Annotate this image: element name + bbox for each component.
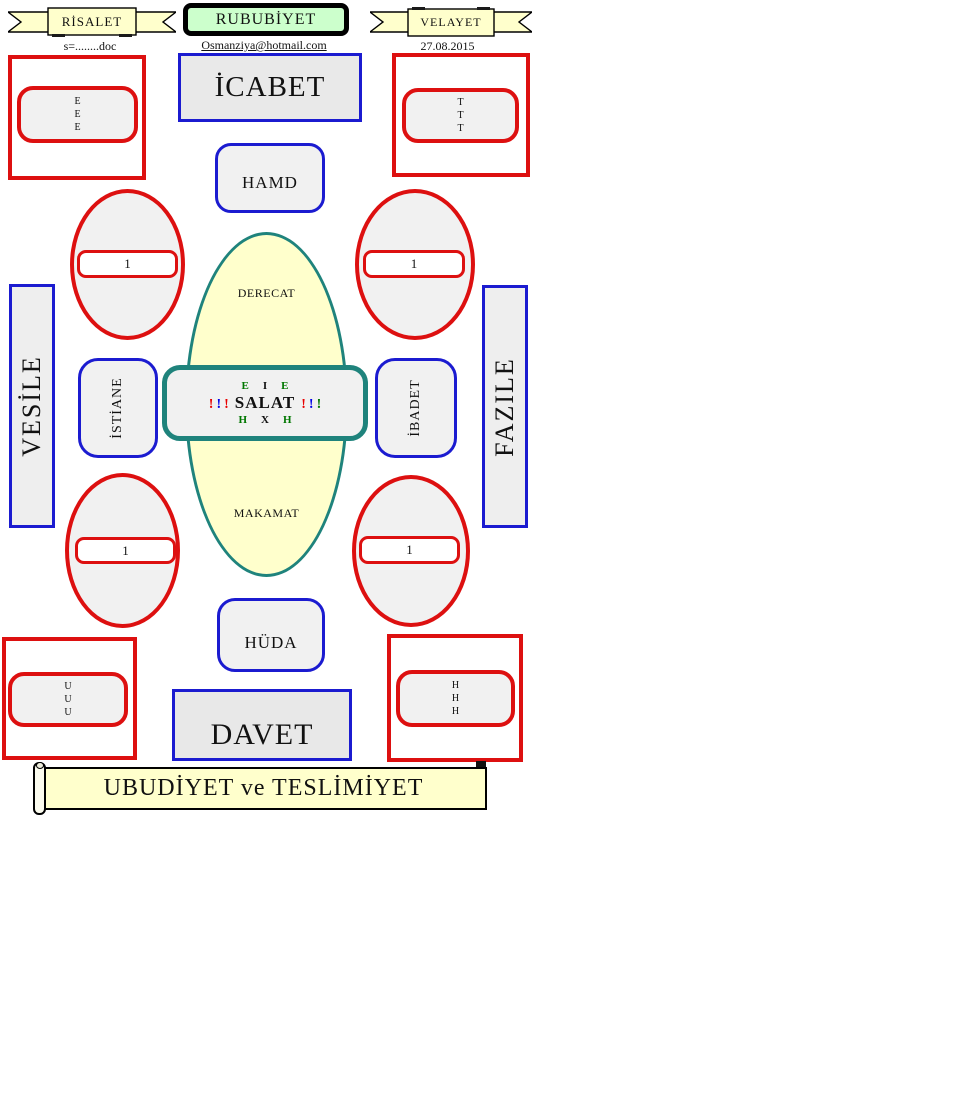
scroll-roll-icon bbox=[33, 762, 46, 815]
ibadet-box: İBADET bbox=[375, 358, 457, 458]
davet-label: DAVET bbox=[211, 718, 314, 752]
hamd-box: HAMD bbox=[215, 143, 325, 213]
footer-banner-label: UBUDİYET ve TESLİMİYET bbox=[104, 775, 424, 802]
letter: X bbox=[261, 414, 269, 426]
doc-filename-text: s=........doc bbox=[30, 39, 150, 54]
top-left-oval-value: 1 bbox=[77, 250, 178, 278]
letter: I bbox=[263, 380, 267, 392]
salat-top-row: E I E bbox=[242, 380, 289, 392]
vesile-bar: VESİLE bbox=[9, 284, 55, 528]
letter: H bbox=[400, 679, 511, 692]
ibadet-label: İBADET bbox=[408, 379, 424, 436]
icabet-box: İCABET bbox=[178, 53, 362, 122]
salat-main-line: ! ! ! SALAT ! ! ! bbox=[209, 393, 321, 413]
letter: U bbox=[12, 693, 124, 706]
letter: E bbox=[21, 108, 134, 121]
letter: E bbox=[242, 380, 249, 392]
top-left-letter-box: E E E bbox=[17, 86, 138, 143]
letter: T bbox=[406, 109, 515, 122]
salat-word: SALAT bbox=[235, 393, 295, 413]
velayet-ribbon: VELAYET bbox=[370, 7, 532, 37]
bottom-right-oval-value: 1 bbox=[359, 536, 460, 564]
right-exclamations: ! ! ! bbox=[301, 397, 321, 413]
letter: T bbox=[406, 122, 515, 135]
document-canvas: RİSALET RUBUBİYET VELAYET s=........doc … bbox=[0, 0, 960, 1102]
bottom-left-letter-box: U U U bbox=[8, 672, 128, 727]
value: 1 bbox=[406, 542, 413, 558]
hamd-label: HAMD bbox=[242, 173, 298, 193]
letter: E bbox=[281, 380, 288, 392]
letter: U bbox=[12, 706, 124, 719]
rububiyet-box: RUBUBİYET bbox=[183, 3, 349, 36]
davet-box: DAVET bbox=[172, 689, 352, 761]
risalet-ribbon: RİSALET bbox=[8, 7, 176, 37]
bottom-right-letter-box: H H H bbox=[396, 670, 515, 727]
letter: T bbox=[406, 96, 515, 109]
letter: E bbox=[21, 95, 134, 108]
salat-box: E I E ! ! ! SALAT ! ! ! H X H bbox=[162, 365, 368, 441]
salat-bottom-row: H X H bbox=[238, 414, 291, 426]
scroll-roll-cap-icon bbox=[36, 762, 44, 769]
derecat-label: DERECAT bbox=[185, 286, 348, 301]
exclamation-mark: ! bbox=[309, 397, 314, 413]
email-link[interactable]: Osmanziya@hotmail.com bbox=[180, 38, 348, 53]
letter: H bbox=[238, 414, 247, 426]
risalet-label: RİSALET bbox=[8, 14, 176, 30]
exclamation-mark: ! bbox=[317, 397, 322, 413]
value: 1 bbox=[411, 256, 418, 272]
istiane-box: İSTİANE bbox=[78, 358, 158, 458]
rububiyet-label: RUBUBİYET bbox=[216, 11, 317, 29]
makamat-label: MAKAMAT bbox=[185, 506, 348, 521]
fazile-label: FAZILE bbox=[490, 357, 520, 457]
bottom-left-oval-value: 1 bbox=[75, 537, 176, 564]
top-right-letter-box: T T T bbox=[402, 88, 519, 143]
letter: H bbox=[283, 414, 292, 426]
exclamation-mark: ! bbox=[301, 397, 306, 413]
exclamation-mark: ! bbox=[209, 397, 214, 413]
icabet-label: İCABET bbox=[215, 71, 326, 104]
footer-scroll-banner: UBUDİYET ve TESLİMİYET bbox=[40, 767, 487, 810]
huda-label: HÜDA bbox=[244, 633, 297, 653]
left-exclamations: ! ! ! bbox=[209, 397, 229, 413]
vesile-label: VESİLE bbox=[17, 355, 47, 457]
letter: E bbox=[21, 121, 134, 134]
letter: U bbox=[12, 680, 124, 693]
letter: H bbox=[400, 692, 511, 705]
huda-box: HÜDA bbox=[217, 598, 325, 672]
velayet-label: VELAYET bbox=[370, 15, 532, 30]
fazile-bar: FAZILE bbox=[482, 285, 528, 528]
value: 1 bbox=[122, 543, 129, 559]
letter: H bbox=[400, 705, 511, 718]
exclamation-mark: ! bbox=[224, 397, 229, 413]
top-right-oval-value: 1 bbox=[363, 250, 465, 278]
exclamation-mark: ! bbox=[216, 397, 221, 413]
date-text: 27.08.2015 bbox=[400, 39, 495, 54]
value: 1 bbox=[124, 256, 131, 272]
istiane-label: İSTİANE bbox=[110, 377, 126, 438]
